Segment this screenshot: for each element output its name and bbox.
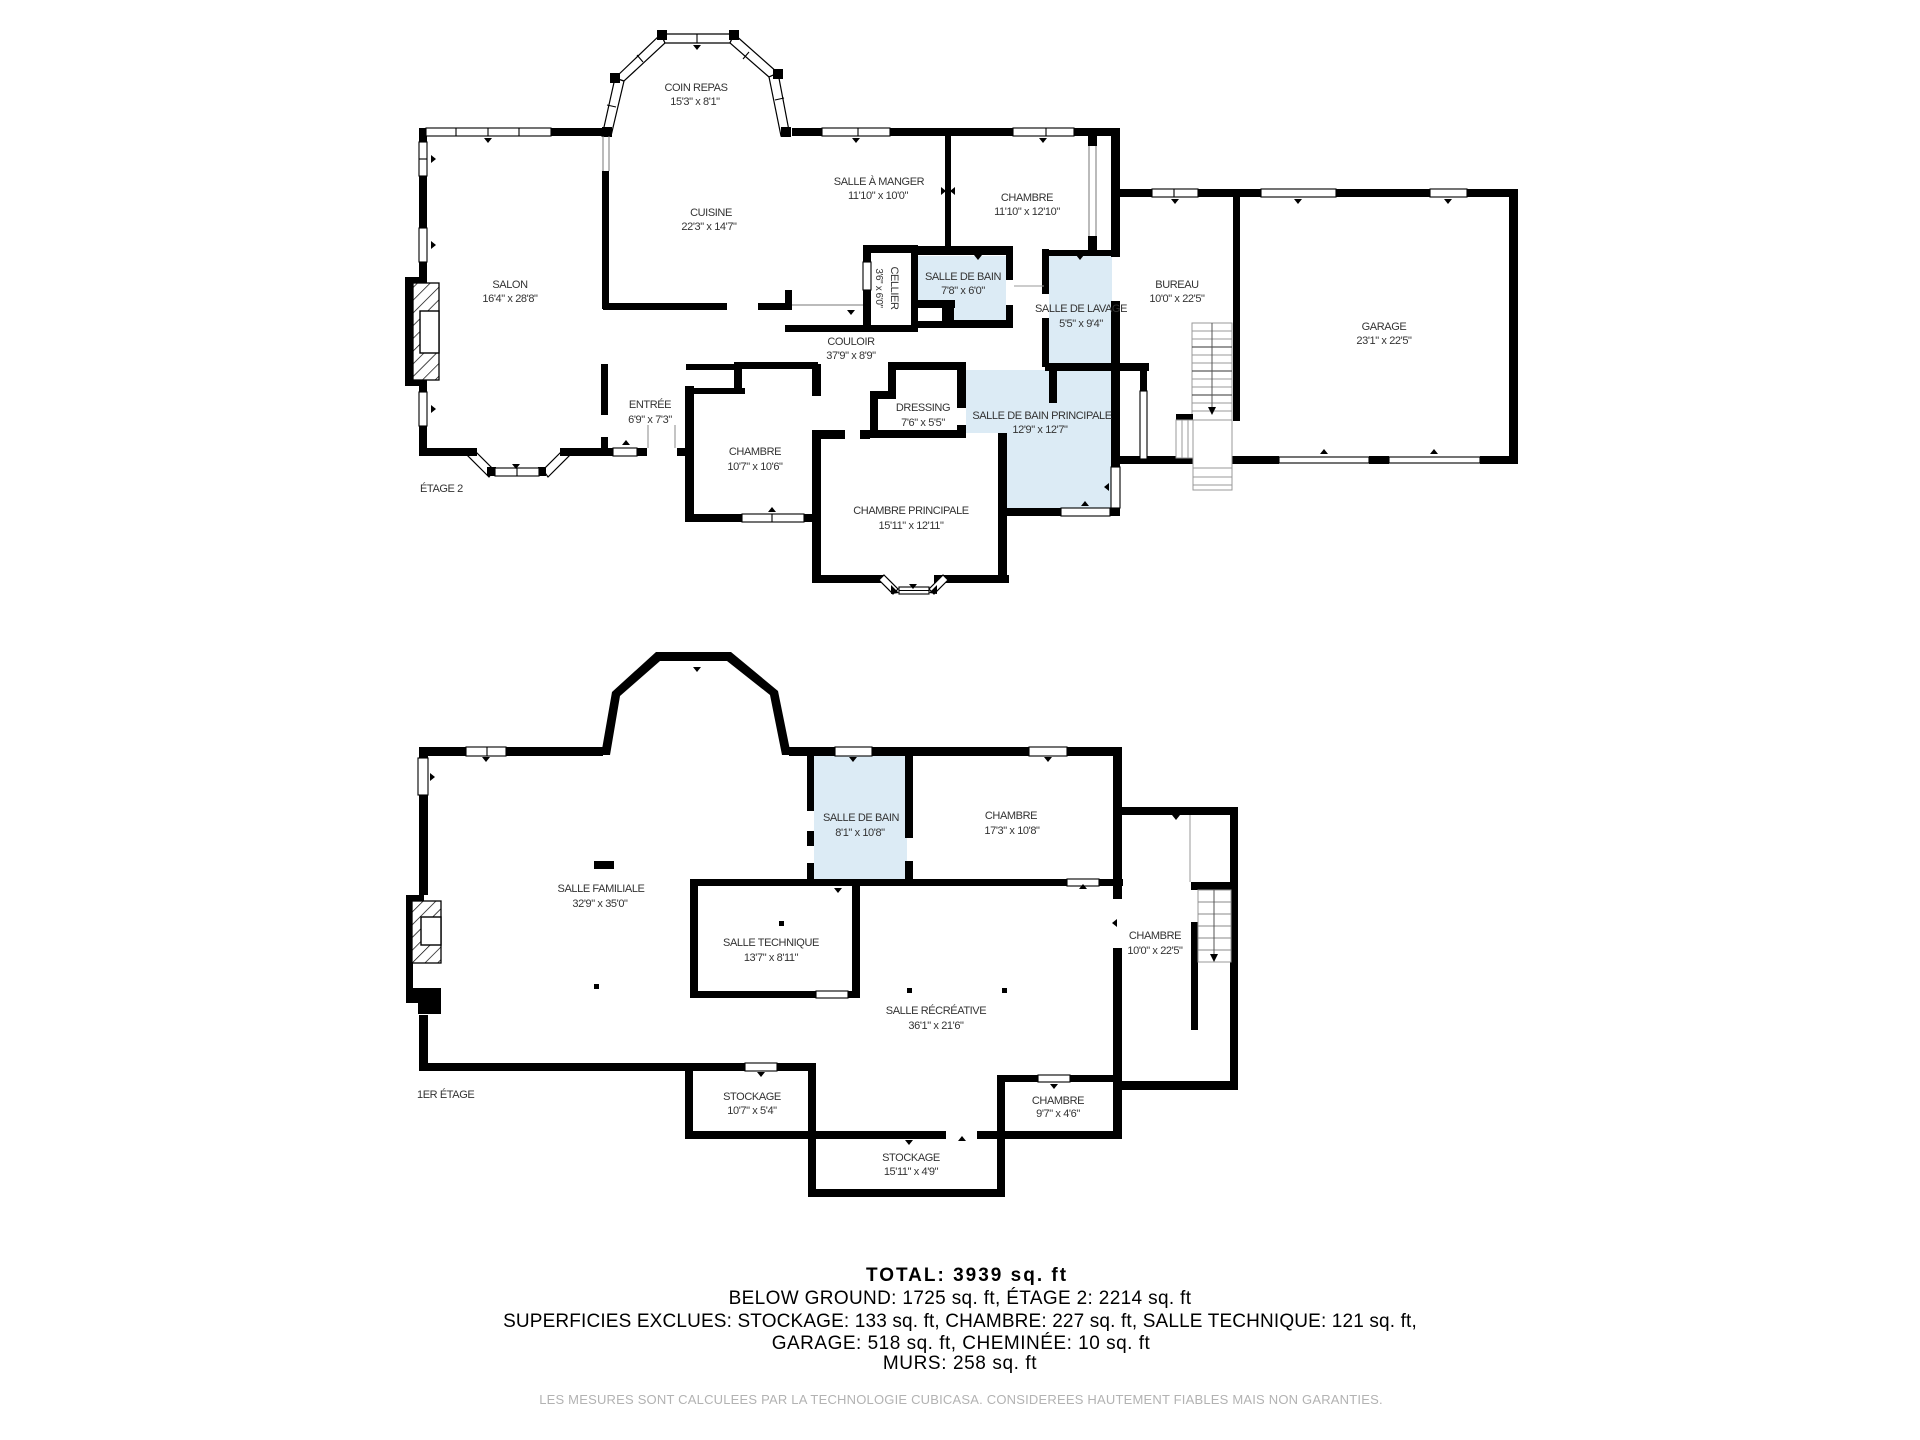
svg-text:SALLE RÉCRÉATIVE: SALLE RÉCRÉATIVE [886, 1004, 986, 1017]
svg-text:SUPERFICIES EXCLUES: STOCKAGE:: SUPERFICIES EXCLUES: STOCKAGE: 133 sq. f… [503, 1311, 1417, 1332]
svg-text:15'11" x 4'9": 15'11" x 4'9" [884, 1166, 939, 1178]
svg-text:15'3" x 8'1": 15'3" x 8'1" [670, 96, 720, 108]
svg-text:7'8" x 6'0": 7'8" x 6'0" [941, 285, 985, 297]
svg-text:3'6" x 6'0": 3'6" x 6'0" [873, 268, 884, 308]
svg-text:15'11" x 12'11": 15'11" x 12'11" [879, 520, 944, 532]
svg-text:16'4" x 28'8": 16'4" x 28'8" [482, 293, 538, 305]
svg-text:TOTAL: 3939 sq. ft: TOTAL: 3939 sq. ft [866, 1265, 1068, 1286]
svg-text:CHAMBRE: CHAMBRE [1032, 1095, 1084, 1107]
svg-text:DRESSING: DRESSING [896, 402, 950, 414]
svg-text:BUREAU: BUREAU [1155, 279, 1199, 291]
svg-text:CHAMBRE: CHAMBRE [985, 810, 1037, 822]
svg-text:11'10" x 10'0": 11'10" x 10'0" [848, 190, 909, 202]
svg-text:CUISINE: CUISINE [690, 207, 732, 219]
svg-text:6'9" x 7'3": 6'9" x 7'3" [628, 414, 672, 426]
svg-text:SALLE FAMILIALE: SALLE FAMILIALE [558, 883, 645, 895]
svg-text:BELOW GROUND: 1725 sq. ft, ÉTA: BELOW GROUND: 1725 sq. ft, ÉTAGE 2: 2214… [729, 1288, 1192, 1309]
svg-text:5'5" x 9'4": 5'5" x 9'4" [1059, 318, 1103, 330]
svg-text:37'9" x 8'9": 37'9" x 8'9" [826, 350, 876, 362]
svg-text:22'3" x 14'7": 22'3" x 14'7" [681, 221, 737, 233]
svg-text:36'1" x 21'6": 36'1" x 21'6" [908, 1020, 964, 1032]
svg-text:SALLE TECHNIQUE: SALLE TECHNIQUE [723, 937, 819, 949]
svg-text:10'0" x 22'5": 10'0" x 22'5" [1127, 945, 1183, 957]
svg-text:COULOIR: COULOIR [827, 336, 875, 348]
svg-text:8'1" x 10'8": 8'1" x 10'8" [835, 827, 885, 839]
svg-text:10'0" x 22'5": 10'0" x 22'5" [1149, 293, 1205, 305]
svg-text:CHAMBRE PRINCIPALE: CHAMBRE PRINCIPALE [853, 505, 969, 517]
svg-text:10'7" x 10'6": 10'7" x 10'6" [727, 461, 783, 473]
svg-text:SALLE À MANGER: SALLE À MANGER [834, 175, 925, 188]
svg-text:12'9" x 12'7": 12'9" x 12'7" [1012, 424, 1068, 436]
svg-text:SALLE DE LAVAGE: SALLE DE LAVAGE [1035, 303, 1127, 315]
svg-text:17'3" x 10'8": 17'3" x 10'8" [984, 825, 1040, 837]
svg-text:SALLE DE BAIN: SALLE DE BAIN [823, 812, 900, 824]
svg-text:COIN REPAS: COIN REPAS [664, 82, 727, 94]
svg-text:ENTRÉE: ENTRÉE [629, 398, 671, 411]
svg-text:SALLE DE BAIN: SALLE DE BAIN [925, 271, 1002, 283]
svg-text:CHAMBRE: CHAMBRE [729, 446, 781, 458]
svg-text:CHAMBRE: CHAMBRE [1129, 930, 1181, 942]
svg-text:7'6" x 5'5": 7'6" x 5'5" [901, 417, 945, 429]
svg-text:13'7" x 8'11": 13'7" x 8'11" [744, 952, 799, 964]
svg-text:32'9" x 35'0": 32'9" x 35'0" [572, 898, 628, 910]
svg-text:11'10" x 12'10": 11'10" x 12'10" [994, 206, 1060, 218]
svg-text:CHAMBRE: CHAMBRE [1001, 192, 1053, 204]
svg-text:1ER ÉTAGE: 1ER ÉTAGE [417, 1088, 474, 1101]
svg-text:GARAGE: GARAGE [1362, 321, 1407, 333]
svg-text:23'1" x 22'5": 23'1" x 22'5" [1356, 335, 1412, 347]
svg-text:SALON: SALON [492, 279, 528, 291]
svg-text:MURS: 258 sq. ft: MURS: 258 sq. ft [883, 1353, 1037, 1374]
svg-text:CELLIER: CELLIER [888, 266, 900, 310]
svg-text:SALLE DE BAIN PRINCIPALE: SALLE DE BAIN PRINCIPALE [972, 410, 1111, 422]
svg-text:STOCKAGE: STOCKAGE [882, 1152, 940, 1164]
svg-text:LES MESURES SONT CALCULEES PAR: LES MESURES SONT CALCULEES PAR LA TECHNO… [539, 1392, 1383, 1407]
svg-text:ÉTAGE 2: ÉTAGE 2 [420, 482, 463, 495]
svg-text:9'7" x 4'6": 9'7" x 4'6" [1036, 1108, 1080, 1120]
svg-text:10'7" x 5'4": 10'7" x 5'4" [727, 1105, 777, 1117]
svg-text:GARAGE: 518 sq. ft, CHEMINÉE:: GARAGE: 518 sq. ft, CHEMINÉE: 10 sq. ft [772, 1333, 1151, 1354]
svg-text:STOCKAGE: STOCKAGE [723, 1091, 781, 1103]
